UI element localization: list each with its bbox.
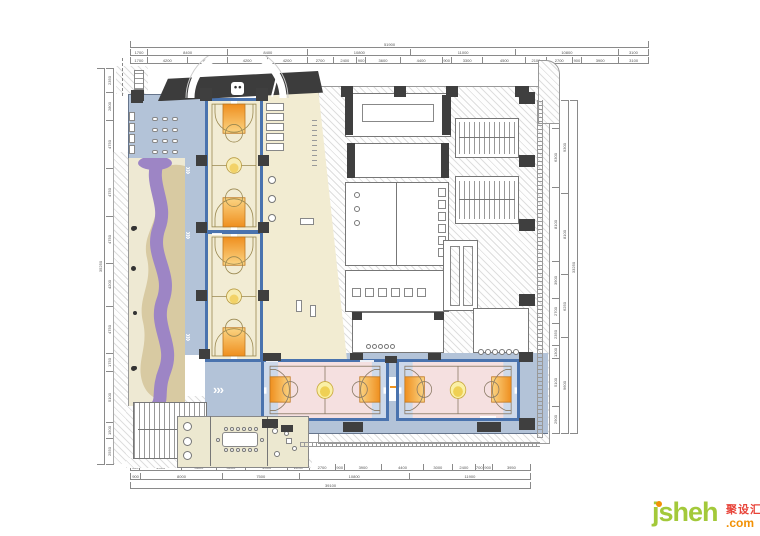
stall: [417, 288, 426, 297]
toilet-stall: [438, 212, 446, 221]
dim-chain-top-mid: 1700840084001080011000108003100: [130, 49, 649, 56]
wall-stud: [131, 366, 136, 371]
locker-icon: [129, 123, 135, 132]
toilet-stall: [438, 188, 446, 197]
dim-segment: 3000: [423, 464, 452, 471]
stairwell-lower: [455, 176, 519, 224]
cafe-table: [183, 437, 192, 446]
chevrons-down-icon: ›››: [183, 334, 193, 341]
dim-chain-right-inner: 300063008100390027002350130051002900: [552, 100, 560, 434]
cafe-table: [183, 451, 192, 460]
dim-segment: 1300: [552, 345, 560, 358]
column: [519, 352, 533, 362]
dim-segment: 8400: [147, 49, 227, 56]
lobby-seat: [162, 117, 168, 121]
dim-chain-top-overall: 51900: [130, 41, 649, 48]
property-line-dashed: [122, 58, 124, 96]
washroom-block: [345, 182, 449, 266]
wall-cap: [441, 143, 449, 178]
chevrons-down-icon: ›››: [183, 167, 193, 174]
dim-segment: 2400: [333, 57, 356, 64]
play-zone: [128, 158, 185, 406]
spectator-seat: [506, 349, 512, 355]
room-partition: [210, 416, 211, 466]
dim-segment: 6300: [552, 128, 560, 186]
column: [341, 86, 353, 97]
dim-segment: 10800: [299, 473, 409, 480]
wall-cap: [352, 312, 362, 320]
stair-rail: [459, 137, 515, 138]
column: [196, 290, 207, 301]
site-fence-dotted: [300, 442, 540, 447]
spectator-seat: [478, 349, 484, 355]
dim-segment: 11900: [409, 473, 530, 480]
chair: [236, 448, 240, 452]
column: [258, 290, 269, 301]
dim-segment: 8100: [561, 193, 569, 274]
dim-segment: 2350: [552, 323, 560, 345]
court-label-dash: [212, 233, 222, 235]
column: [196, 222, 207, 233]
column: [343, 422, 363, 432]
chair: [236, 427, 240, 431]
stall: [365, 288, 374, 297]
stall: [378, 288, 387, 297]
seat-dot: [378, 344, 383, 349]
court-label-dash: [480, 416, 496, 418]
wall-cap: [442, 95, 451, 135]
dim-segment: 900: [130, 473, 140, 480]
treadmill-icon: [266, 113, 284, 121]
dim-segment: 8400: [227, 49, 307, 56]
dim-segment: 33250: [570, 100, 578, 433]
dim-segment: 4200: [147, 57, 187, 64]
dim-segment: 35250: [97, 68, 105, 464]
lobby-seat: [162, 150, 168, 154]
spectator-seat: [485, 349, 491, 355]
chair: [216, 438, 220, 442]
watermark-chinese: 聚设汇: [726, 501, 760, 517]
court-markings: [208, 234, 260, 359]
lobby-seat: [162, 139, 168, 143]
dim-segment: 3950: [492, 464, 530, 471]
wall-stud: [131, 266, 136, 271]
lobby-seat: [152, 139, 158, 143]
dim-segment: 2350: [106, 68, 114, 92]
dim-segment: 3100: [618, 57, 648, 64]
dim-segment: 39100: [130, 482, 530, 489]
column: [131, 90, 144, 101]
dim-segment: 10800: [515, 49, 618, 56]
dim-segment: 900: [572, 57, 581, 64]
lobby-seat: [152, 150, 158, 154]
mat-icon: [300, 218, 314, 225]
wall-bars-icon: [312, 118, 317, 166]
seat-dot: [372, 344, 377, 349]
dim-segment: 4500: [482, 57, 525, 64]
stair-steps: [459, 122, 515, 154]
court-markings: [264, 362, 386, 418]
column: [519, 219, 535, 231]
conference-table: [222, 432, 258, 447]
court-markings: [208, 101, 260, 230]
dim-segment: 3900: [344, 464, 381, 471]
column: [262, 419, 278, 428]
counter: [362, 104, 434, 122]
lounge-seat: [272, 428, 278, 434]
dim-segment: 2700: [309, 464, 335, 471]
dim-segment: 900: [335, 464, 344, 471]
dim-segment: 3900: [581, 57, 618, 64]
stall: [391, 288, 400, 297]
lounge-table: [286, 438, 292, 444]
treadmill-icon: [266, 103, 284, 111]
dim-segment: 3300: [451, 57, 483, 64]
viewing-room: [473, 308, 529, 353]
dim-segment: 8100: [552, 187, 560, 262]
service-room-2: [347, 143, 449, 178]
wall-cap: [345, 95, 353, 135]
basketball-court-vertical-1: [205, 98, 263, 233]
cafe-table: [183, 422, 192, 431]
chair: [230, 448, 234, 452]
locker-icon: [129, 145, 135, 154]
dim-segment: 700: [475, 464, 483, 471]
dim-segment: 900: [356, 57, 365, 64]
column: [519, 418, 535, 430]
wall-cap: [434, 312, 444, 320]
shelf-unit: [463, 246, 473, 306]
shelf-unit: [450, 246, 460, 306]
column: [519, 92, 535, 104]
lobby-seat: [172, 128, 178, 132]
lobby-seat: [172, 139, 178, 143]
watermark-name: jsheh: [652, 497, 718, 528]
stairwell-upper: [455, 118, 519, 158]
wc-partition: [396, 183, 397, 265]
dim-segment: 3600: [365, 57, 399, 64]
lobby-seat: [162, 128, 168, 132]
basketball-court-vertical-2: [205, 231, 263, 362]
dim-segment: 1700: [130, 49, 147, 56]
dim-chain-bottom-mid: 900800075001080011900: [130, 473, 531, 480]
dim-segment: 8000: [140, 473, 222, 480]
dim-segment: 9600: [561, 337, 569, 433]
scooter-icon: [296, 300, 302, 312]
court-label-dash: [360, 360, 374, 362]
chair: [242, 448, 246, 452]
column: [519, 294, 535, 306]
column: [477, 422, 501, 432]
entry-exterior-steps: [134, 70, 144, 90]
column: [258, 155, 269, 166]
dim-segment: 4400: [381, 464, 423, 471]
column: [258, 222, 269, 233]
floor-plan-canvas: 51900 1700840084001080011000108003100 17…: [0, 0, 760, 536]
column: [263, 353, 281, 361]
stall: [352, 288, 361, 297]
wall-stud: [131, 226, 136, 231]
dim-segment: 7500: [222, 473, 299, 480]
column: [350, 353, 363, 360]
lobby-seat: [152, 117, 158, 121]
spectator-seat: [492, 349, 498, 355]
lobby-seat: [172, 117, 178, 121]
hoop-stand-icon: [268, 176, 276, 184]
dim-segment: 3100: [618, 49, 648, 56]
play-zone-graphic: [129, 158, 185, 406]
toilet-stall: [438, 200, 446, 209]
seat-dot: [384, 344, 389, 349]
chair: [254, 448, 258, 452]
column: [196, 155, 207, 166]
dim-chain-right-overall: 33250: [570, 100, 578, 434]
basketball-court-horizontal-1: [261, 359, 389, 421]
chair: [248, 448, 252, 452]
chevrons-right-icon: ›››: [213, 383, 223, 396]
dim-segment: 2700: [552, 298, 560, 324]
seat-dot: [366, 344, 371, 349]
treadmill-icon: [266, 143, 284, 151]
column: [199, 349, 210, 359]
corridor-vertical: [183, 158, 205, 355]
sink-icon: [354, 220, 360, 226]
stair-steps: [459, 181, 515, 219]
lobby-seat: [172, 150, 178, 154]
column: [281, 425, 293, 432]
dim-segment: 6250: [561, 274, 569, 336]
curtain-wall-strip: [537, 100, 543, 438]
locker-icon: [129, 134, 135, 143]
toilet-stall: [438, 224, 446, 233]
dim-segment: 2400: [452, 464, 475, 471]
column: [446, 86, 458, 97]
dim-segment: 2700: [307, 57, 333, 64]
chair: [224, 448, 228, 452]
wall-cap: [347, 143, 355, 178]
basketball-court-horizontal-2: [396, 359, 520, 421]
dim-segment: 900: [442, 57, 451, 64]
dim-chain-bottom-overall: 39100: [130, 482, 531, 489]
dim-segment: 2800: [106, 92, 114, 121]
chair: [254, 427, 258, 431]
lounge-seat: [274, 451, 280, 457]
chair: [230, 427, 234, 431]
sink-icon: [354, 206, 360, 212]
dim-segment: 9300: [561, 100, 569, 193]
dim-segment: 5100: [552, 358, 560, 405]
dim-segment: 2900: [552, 406, 560, 433]
dim-segment: 11000: [410, 49, 515, 56]
treadmill-icon: [266, 123, 284, 131]
stair-rail: [459, 199, 515, 200]
column: [428, 353, 441, 360]
dim-chain-left-overall: 35250: [97, 68, 105, 465]
column: [200, 88, 212, 101]
chair: [248, 427, 252, 431]
entrance-logo: [231, 82, 244, 95]
column: [394, 86, 406, 97]
dim-segment: 3900: [552, 261, 560, 298]
lobby-seat: [152, 128, 158, 132]
treadmill-icon: [266, 133, 284, 141]
scooter-icon: [310, 305, 316, 317]
storage-room: [443, 240, 478, 311]
dim-segment: 4400: [400, 57, 442, 64]
column: [519, 155, 535, 167]
dim-segment: 1700: [130, 57, 147, 64]
chair: [224, 427, 228, 431]
column: [385, 356, 397, 363]
seat-dot: [390, 344, 395, 349]
dim-segment: 900: [483, 464, 492, 471]
hoop-stand-icon: [268, 214, 276, 222]
sink-icon: [354, 192, 360, 198]
stall: [404, 288, 413, 297]
service-room-1: [345, 93, 451, 137]
dim-segment: 10800: [307, 49, 410, 56]
watermark: jsheh 聚设汇 .com: [652, 497, 760, 535]
chair: [260, 438, 264, 442]
watermark-tld: .com: [726, 516, 754, 530]
hoop-stand-icon: [268, 195, 276, 203]
dim-segment: 51900: [130, 41, 648, 48]
column: [256, 88, 268, 101]
watermark-dot-icon: [656, 501, 662, 507]
locker-icon: [129, 112, 135, 121]
spectator-seat: [499, 349, 505, 355]
lounge-seat: [292, 446, 297, 451]
court-markings: [399, 362, 517, 418]
chevrons-down-icon: ›››: [183, 232, 193, 239]
dim-chain-right-mid: 9300810062509600: [561, 100, 569, 434]
chair: [242, 427, 246, 431]
